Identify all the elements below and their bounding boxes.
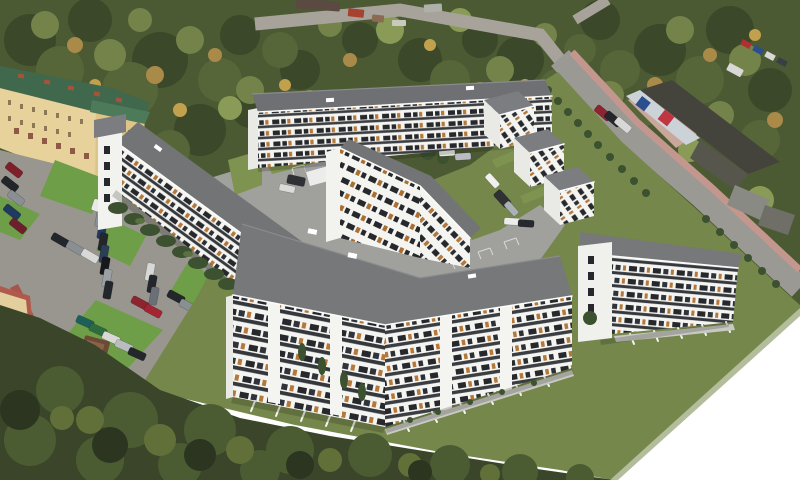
roof-hatch bbox=[326, 98, 334, 102]
wing-3 bbox=[544, 167, 594, 225]
stair-core bbox=[500, 305, 512, 392]
house-roof bbox=[348, 8, 365, 18]
end-wall bbox=[226, 295, 233, 399]
greenhouse bbox=[392, 20, 406, 26]
stair-core bbox=[440, 315, 452, 411]
house-roof bbox=[372, 14, 385, 22]
facade bbox=[612, 256, 738, 334]
rendered-car bbox=[518, 219, 534, 227]
house-roof bbox=[424, 3, 443, 12]
end-wall bbox=[326, 148, 340, 242]
stair-core bbox=[330, 314, 342, 416]
tree bbox=[583, 311, 597, 325]
aerial-render-image bbox=[0, 0, 800, 480]
stair-core bbox=[268, 302, 280, 404]
aerial-render-canvas bbox=[0, 0, 800, 480]
end-wall bbox=[248, 108, 258, 170]
roof-hatch bbox=[466, 86, 474, 90]
end-tower bbox=[578, 242, 612, 342]
